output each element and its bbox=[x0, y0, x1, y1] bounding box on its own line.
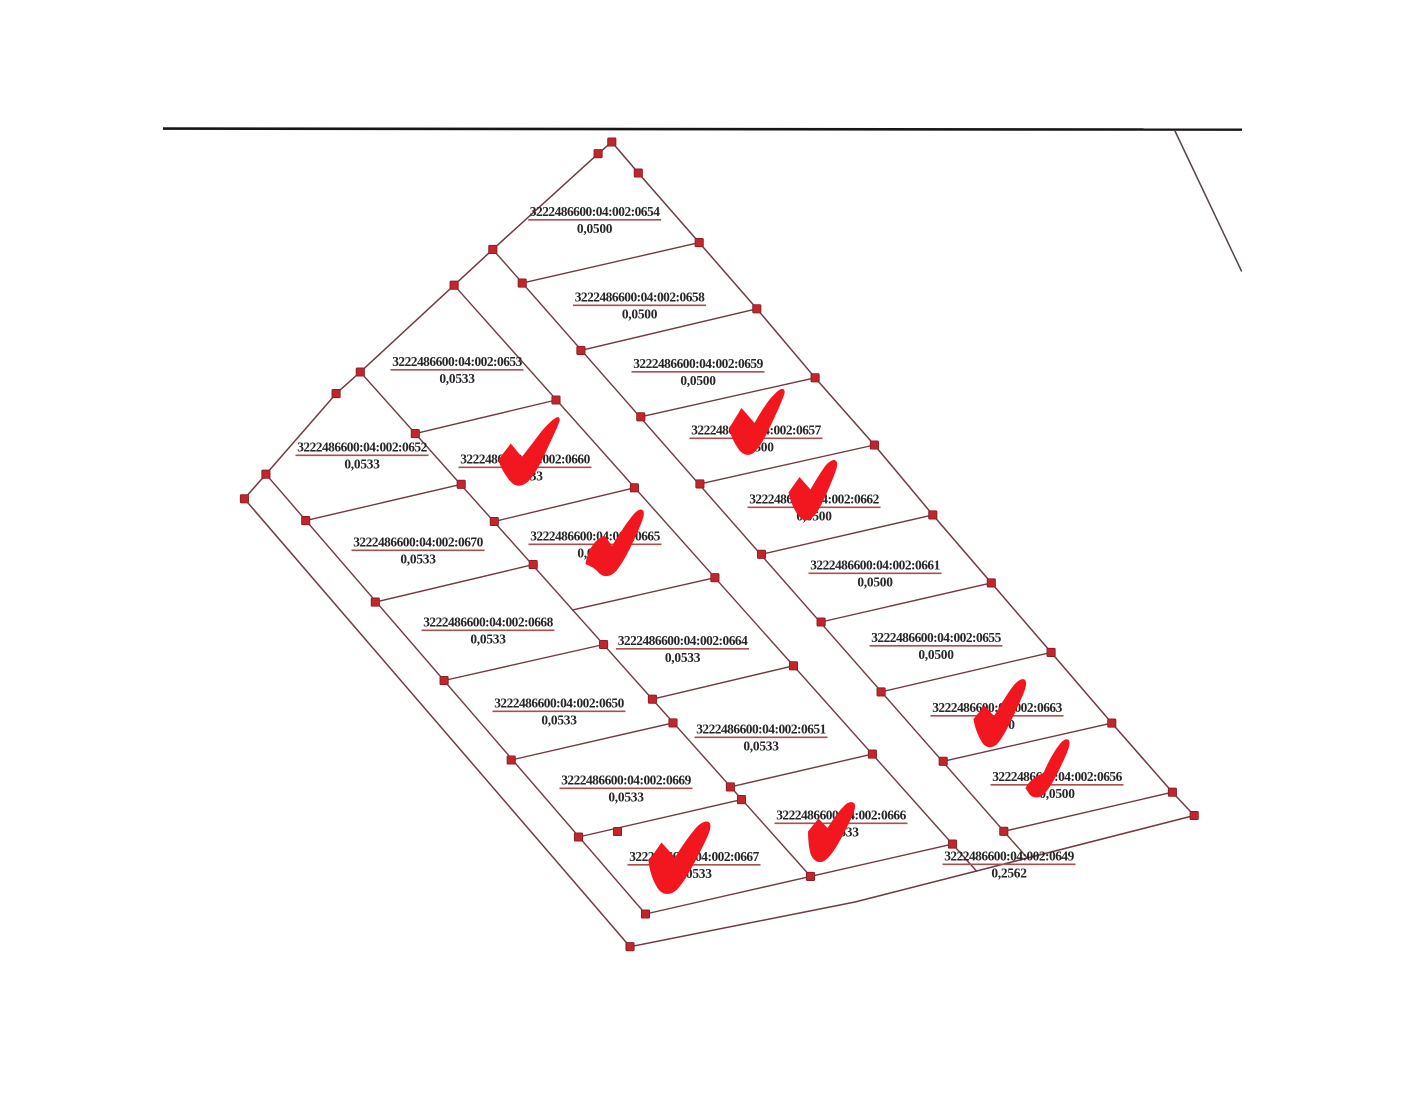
svg-text:3222486600:04:002:0649: 3222486600:04:002:0649 bbox=[944, 849, 1074, 864]
svg-text:0,0533: 0,0533 bbox=[541, 713, 577, 728]
svg-text:3222486600:04:002:0658: 3222486600:04:002:0658 bbox=[575, 290, 705, 305]
svg-text:0,0500: 0,0500 bbox=[918, 647, 954, 662]
svg-text:3222486600:04:002:0669: 3222486600:04:002:0669 bbox=[561, 773, 691, 788]
svg-text:0,0500: 0,0500 bbox=[622, 307, 658, 322]
svg-text:3222486600:04:002:0661: 3222486600:04:002:0661 bbox=[810, 558, 940, 573]
svg-text:0,0533: 0,0533 bbox=[743, 739, 779, 754]
svg-text:0,0533: 0,0533 bbox=[665, 650, 701, 665]
svg-text:3222486600:04:002:0655: 3222486600:04:002:0655 bbox=[871, 630, 1001, 645]
svg-text:0,2562: 0,2562 bbox=[991, 866, 1027, 881]
svg-text:0,0533: 0,0533 bbox=[439, 371, 475, 386]
svg-text:0,0533: 0,0533 bbox=[400, 552, 436, 567]
svg-text:3222486600:04:002:0652: 3222486600:04:002:0652 bbox=[297, 440, 427, 455]
svg-text:3222486600:04:002:0659: 3222486600:04:002:0659 bbox=[633, 356, 763, 371]
svg-text:0,0533: 0,0533 bbox=[608, 790, 644, 805]
svg-text:3222486600:04:002:0653: 3222486600:04:002:0653 bbox=[392, 354, 522, 369]
svg-text:0,0533: 0,0533 bbox=[344, 457, 380, 472]
svg-text:3222486600:04:002:0664: 3222486600:04:002:0664 bbox=[618, 633, 748, 648]
svg-text:3222486600:04:002:0665: 3222486600:04:002:0665 bbox=[530, 529, 660, 544]
svg-text:3222486600:04:002:0650: 3222486600:04:002:0650 bbox=[494, 696, 624, 711]
svg-text:3222486600:04:002:0651: 3222486600:04:002:0651 bbox=[696, 722, 826, 737]
svg-text:3222486600:04:002:0668: 3222486600:04:002:0668 bbox=[423, 615, 553, 630]
svg-text:0,0533: 0,0533 bbox=[470, 632, 506, 647]
svg-text:0,0500: 0,0500 bbox=[577, 221, 613, 236]
svg-text:3222486600:04:002:0670: 3222486600:04:002:0670 bbox=[353, 535, 483, 550]
svg-text:3222486600:04:002:0654: 3222486600:04:002:0654 bbox=[530, 204, 660, 219]
svg-text:0,0500: 0,0500 bbox=[857, 575, 893, 590]
svg-text:0,0500: 0,0500 bbox=[680, 373, 716, 388]
